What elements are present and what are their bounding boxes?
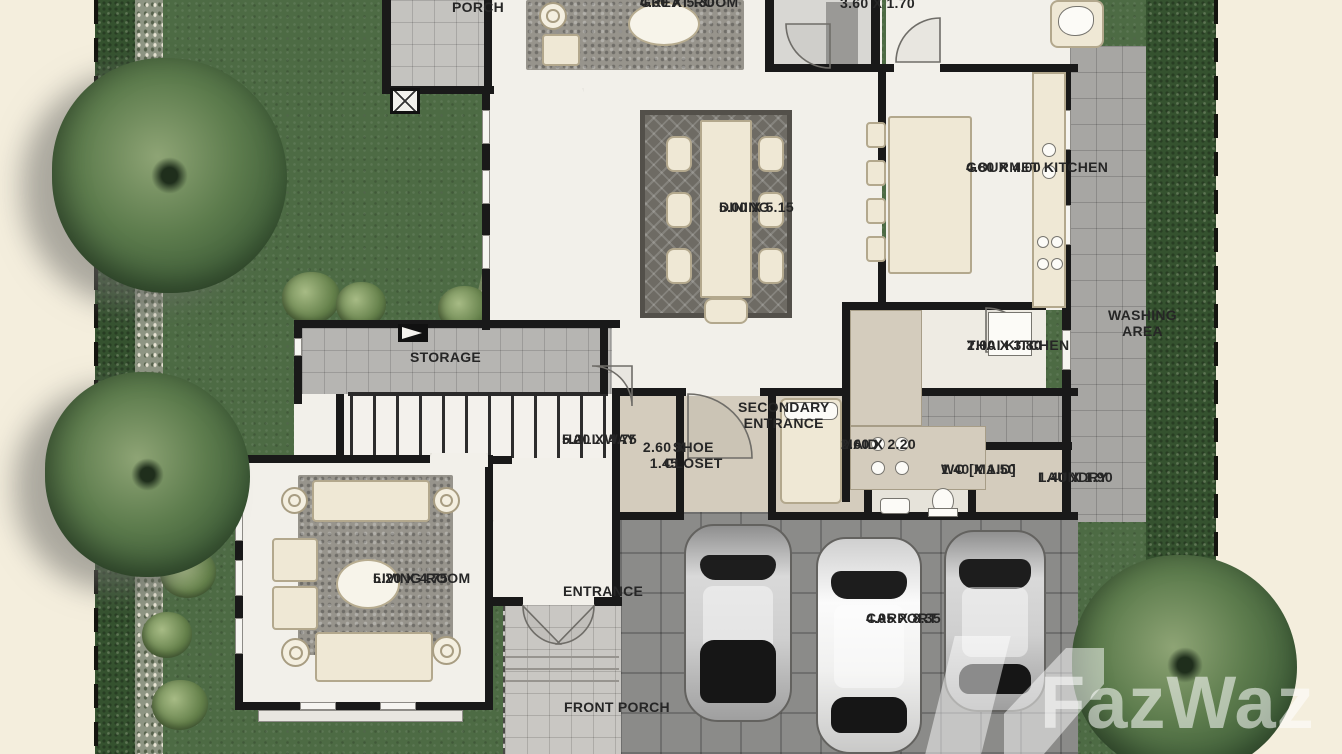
stool (866, 160, 886, 186)
toilet-tank (928, 508, 958, 517)
armchair (542, 34, 580, 66)
stove-burner (1051, 236, 1063, 248)
watermark-text: FazWaz (1040, 660, 1315, 745)
side-table (432, 636, 461, 665)
entrance-step (505, 668, 619, 670)
wc-sink (880, 498, 910, 514)
floor-plan: PORCH GREAT ROOM4.30 X 5.30 3.60 X 1.70 … (0, 0, 1342, 754)
armchair (272, 586, 318, 630)
tree (52, 58, 287, 293)
armchair (272, 538, 318, 582)
stool (866, 236, 886, 262)
side-table (433, 487, 460, 514)
dining-chair (666, 248, 692, 284)
utility-box (390, 88, 420, 114)
sofa (315, 632, 433, 682)
car (816, 537, 922, 754)
dining-chair (666, 136, 692, 172)
side-table (281, 638, 310, 667)
stove-burner (1037, 258, 1049, 270)
north-marker (398, 324, 428, 342)
entrance-step (505, 680, 619, 682)
stool (866, 198, 886, 224)
car (684, 524, 792, 722)
entrance-step (505, 656, 619, 658)
stove-burner (871, 461, 885, 475)
stove-burner (895, 461, 909, 475)
side-table (539, 2, 567, 30)
tree (45, 372, 250, 577)
stove-burner (1051, 258, 1063, 270)
side-table (281, 487, 308, 514)
sofa (312, 480, 430, 522)
stove-burner (1037, 236, 1049, 248)
dining-chair (666, 192, 692, 228)
dining-chair (704, 298, 748, 324)
kitchen-counter (1032, 72, 1066, 308)
sink (1042, 143, 1056, 157)
pillow (1058, 6, 1094, 36)
dining-chair (758, 136, 784, 172)
dining-chair (758, 248, 784, 284)
thai-counter (850, 310, 922, 426)
stool (866, 122, 886, 148)
kitchen-island (888, 116, 972, 274)
